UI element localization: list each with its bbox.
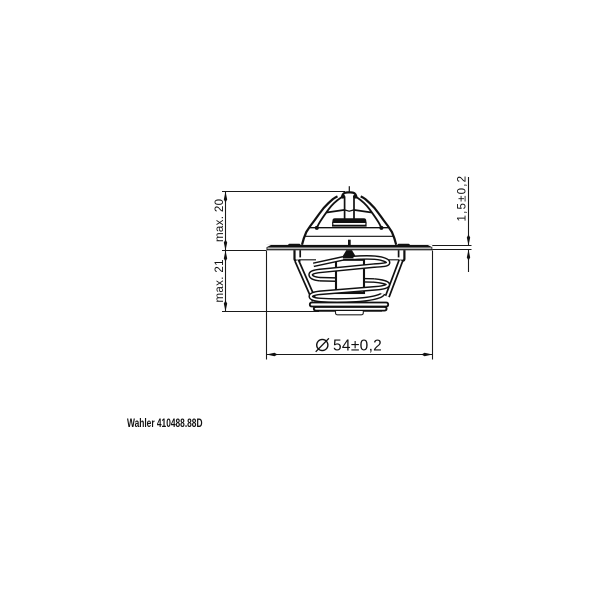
svg-text:54±0,2: 54±0,2 xyxy=(333,338,382,355)
svg-text:max. 20: max. 20 xyxy=(214,199,226,242)
svg-text:max. 21: max. 21 xyxy=(214,259,226,302)
svg-text:1,5±0,2: 1,5±0,2 xyxy=(457,175,469,222)
svg-text:Wahler 410488.88D: Wahler 410488.88D xyxy=(127,418,203,430)
